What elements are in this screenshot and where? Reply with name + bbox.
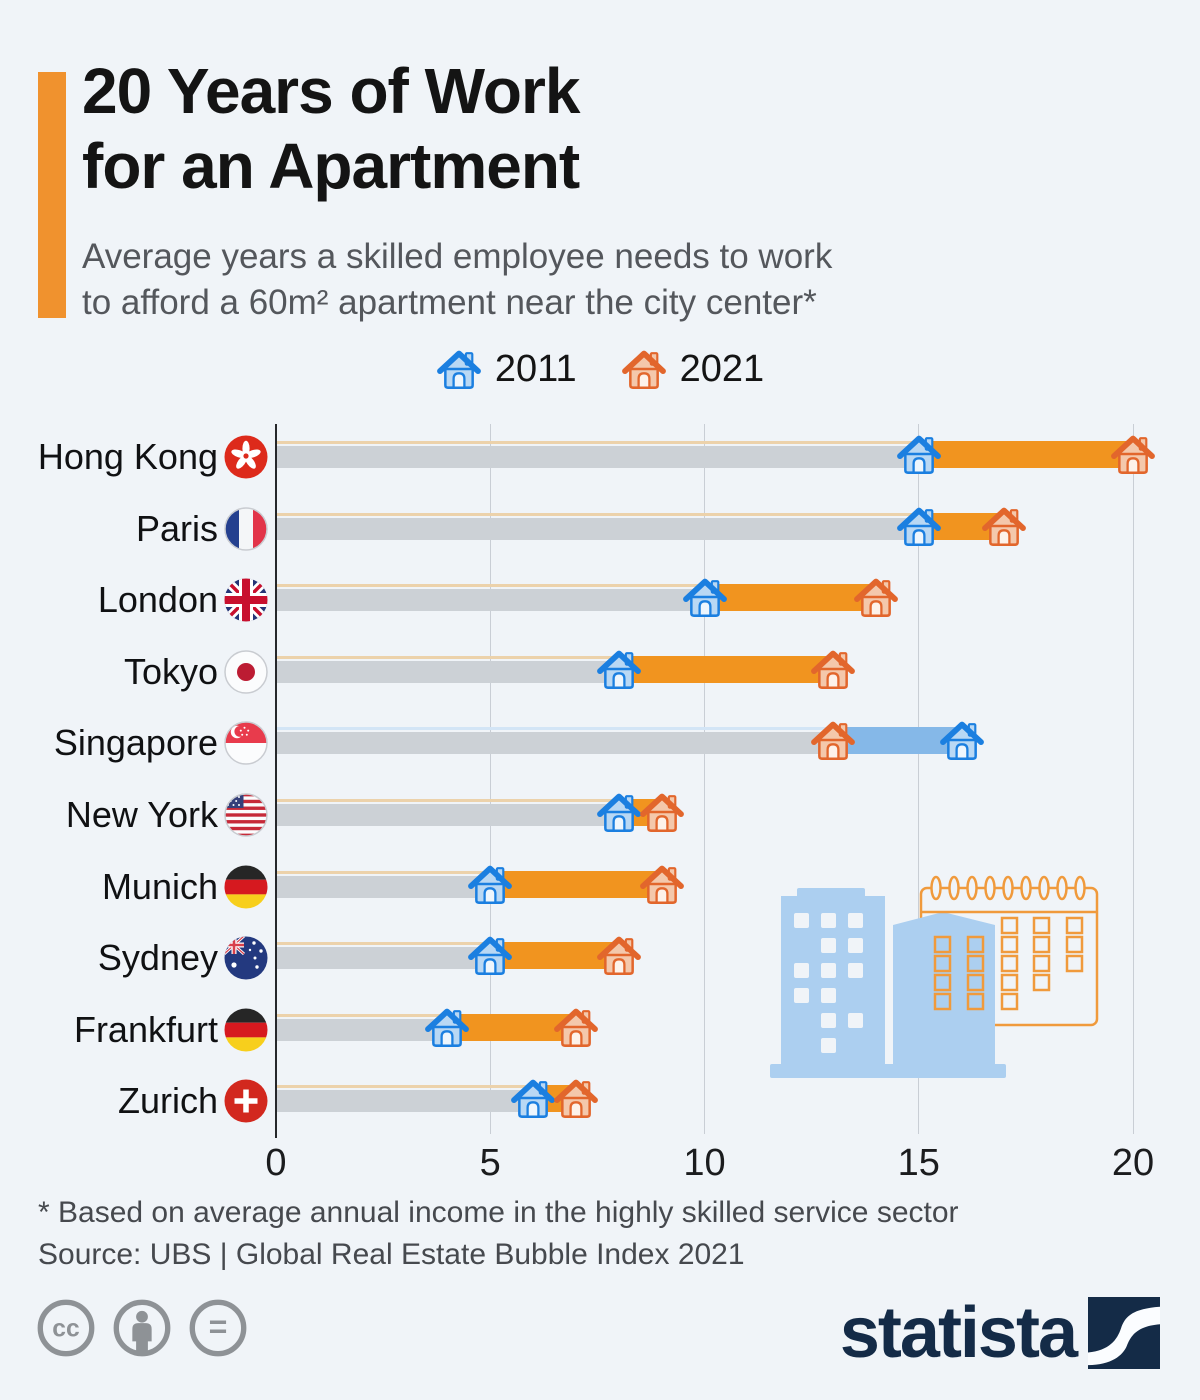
house-2011-marker-sydney — [467, 932, 513, 978]
x-tick-label-0: 0 — [231, 1142, 321, 1185]
x-tick-label-15: 15 — [874, 1142, 964, 1185]
house-2011-marker-new-york — [596, 789, 642, 835]
flag-icon-paris — [224, 507, 268, 551]
bar-topline-tokyo — [277, 656, 620, 659]
svg-text:=: = — [209, 1309, 228, 1345]
row-label-zurich: Zurich — [0, 1079, 218, 1123]
bar-change-tokyo — [619, 656, 833, 683]
house-2021-marker-munich — [639, 861, 685, 907]
bar-topline-zurich — [277, 1085, 534, 1088]
bar-change-hong-kong — [919, 441, 1133, 468]
infographic-page: 20 Years of Workfor an Apartment Average… — [0, 0, 1200, 1400]
row-label-frankfurt: Frankfurt — [0, 1008, 218, 1052]
flag-icon-hong-kong — [224, 435, 268, 479]
house-2021-marker-singapore — [810, 717, 856, 763]
bar-track-munich — [277, 876, 491, 898]
house-2011-marker-zurich — [510, 1075, 556, 1121]
cc-license-icons: cc= — [36, 1298, 248, 1358]
flag-icon-frankfurt — [224, 1008, 268, 1052]
house-2021-marker-hong-kong — [1110, 431, 1156, 477]
license-by-icon[interactable] — [112, 1298, 172, 1358]
row-label-sydney: Sydney — [0, 936, 218, 980]
house-2021-marker-zurich — [553, 1075, 599, 1121]
house-2021-marker-london — [853, 574, 899, 620]
flag-icon-london — [224, 578, 268, 622]
license-cc-icon[interactable]: cc — [36, 1298, 96, 1358]
bar-topline-new-york — [277, 799, 620, 802]
row-label-munich: Munich — [0, 865, 218, 909]
source-line: Source: UBS | Global Real Estate Bubble … — [38, 1238, 745, 1272]
bar-topline-hong-kong — [277, 441, 920, 444]
statista-logo[interactable]: statista — [840, 1292, 1160, 1374]
house-2021-marker-paris — [981, 503, 1027, 549]
house-2011-marker-tokyo — [596, 646, 642, 692]
flag-icon-singapore — [224, 721, 268, 765]
bar-change-munich — [490, 871, 661, 898]
bar-track-singapore — [277, 732, 834, 754]
statista-logo-text: statista — [840, 1292, 1076, 1374]
license-nd-icon[interactable]: = — [188, 1298, 248, 1358]
flag-icon-tokyo — [224, 650, 268, 694]
house-2011-marker-paris — [896, 503, 942, 549]
house-2021-marker-new-york — [639, 789, 685, 835]
house-2011-marker-munich — [467, 861, 513, 907]
calendar-icon — [932, 877, 1085, 899]
gridline-20 — [1133, 424, 1134, 1134]
bar-track-sydney — [277, 947, 491, 969]
bar-track-zurich — [277, 1090, 534, 1112]
bar-topline-paris — [277, 513, 920, 516]
dumbbell-chart: 05101520Hong Kong Paris London — [0, 0, 1200, 1400]
bar-track-paris — [277, 518, 920, 540]
x-tick-label-5: 5 — [445, 1142, 535, 1185]
flag-icon-munich — [224, 865, 268, 909]
house-2011-marker-frankfurt — [424, 1004, 470, 1050]
row-label-singapore: Singapore — [0, 721, 218, 765]
row-label-new-york: New York — [0, 793, 218, 837]
statista-logo-mark — [1088, 1297, 1160, 1369]
bar-track-frankfurt — [277, 1019, 448, 1041]
row-label-london: London — [0, 578, 218, 622]
footnote: * Based on average annual income in the … — [38, 1196, 959, 1230]
house-2021-marker-sydney — [596, 932, 642, 978]
house-2021-marker-frankfurt — [553, 1004, 599, 1050]
flag-icon-new-york — [224, 793, 268, 837]
bar-topline-munich — [277, 871, 491, 874]
row-label-tokyo: Tokyo — [0, 650, 218, 694]
bar-topline-singapore — [277, 727, 834, 730]
row-label-hong-kong: Hong Kong — [0, 435, 218, 479]
bar-track-london — [277, 589, 706, 611]
house-2021-marker-tokyo — [810, 646, 856, 692]
house-2011-marker-hong-kong — [896, 431, 942, 477]
bar-track-new-york — [277, 804, 620, 826]
buildings-calendar-decoration — [770, 868, 1120, 1083]
house-2011-marker-singapore — [939, 717, 985, 763]
svg-text:cc: cc — [52, 1316, 79, 1343]
bar-topline-london — [277, 584, 706, 587]
x-tick-label-10: 10 — [660, 1142, 750, 1185]
bar-track-hong-kong — [277, 446, 920, 468]
flag-icon-sydney — [224, 936, 268, 980]
x-tick-label-20: 20 — [1088, 1142, 1178, 1185]
row-label-paris: Paris — [0, 507, 218, 551]
flag-icon-zurich — [224, 1079, 268, 1123]
bar-topline-frankfurt — [277, 1014, 448, 1017]
bar-topline-sydney — [277, 942, 491, 945]
bar-change-london — [705, 584, 876, 611]
house-2011-marker-london — [682, 574, 728, 620]
bar-track-tokyo — [277, 661, 620, 683]
